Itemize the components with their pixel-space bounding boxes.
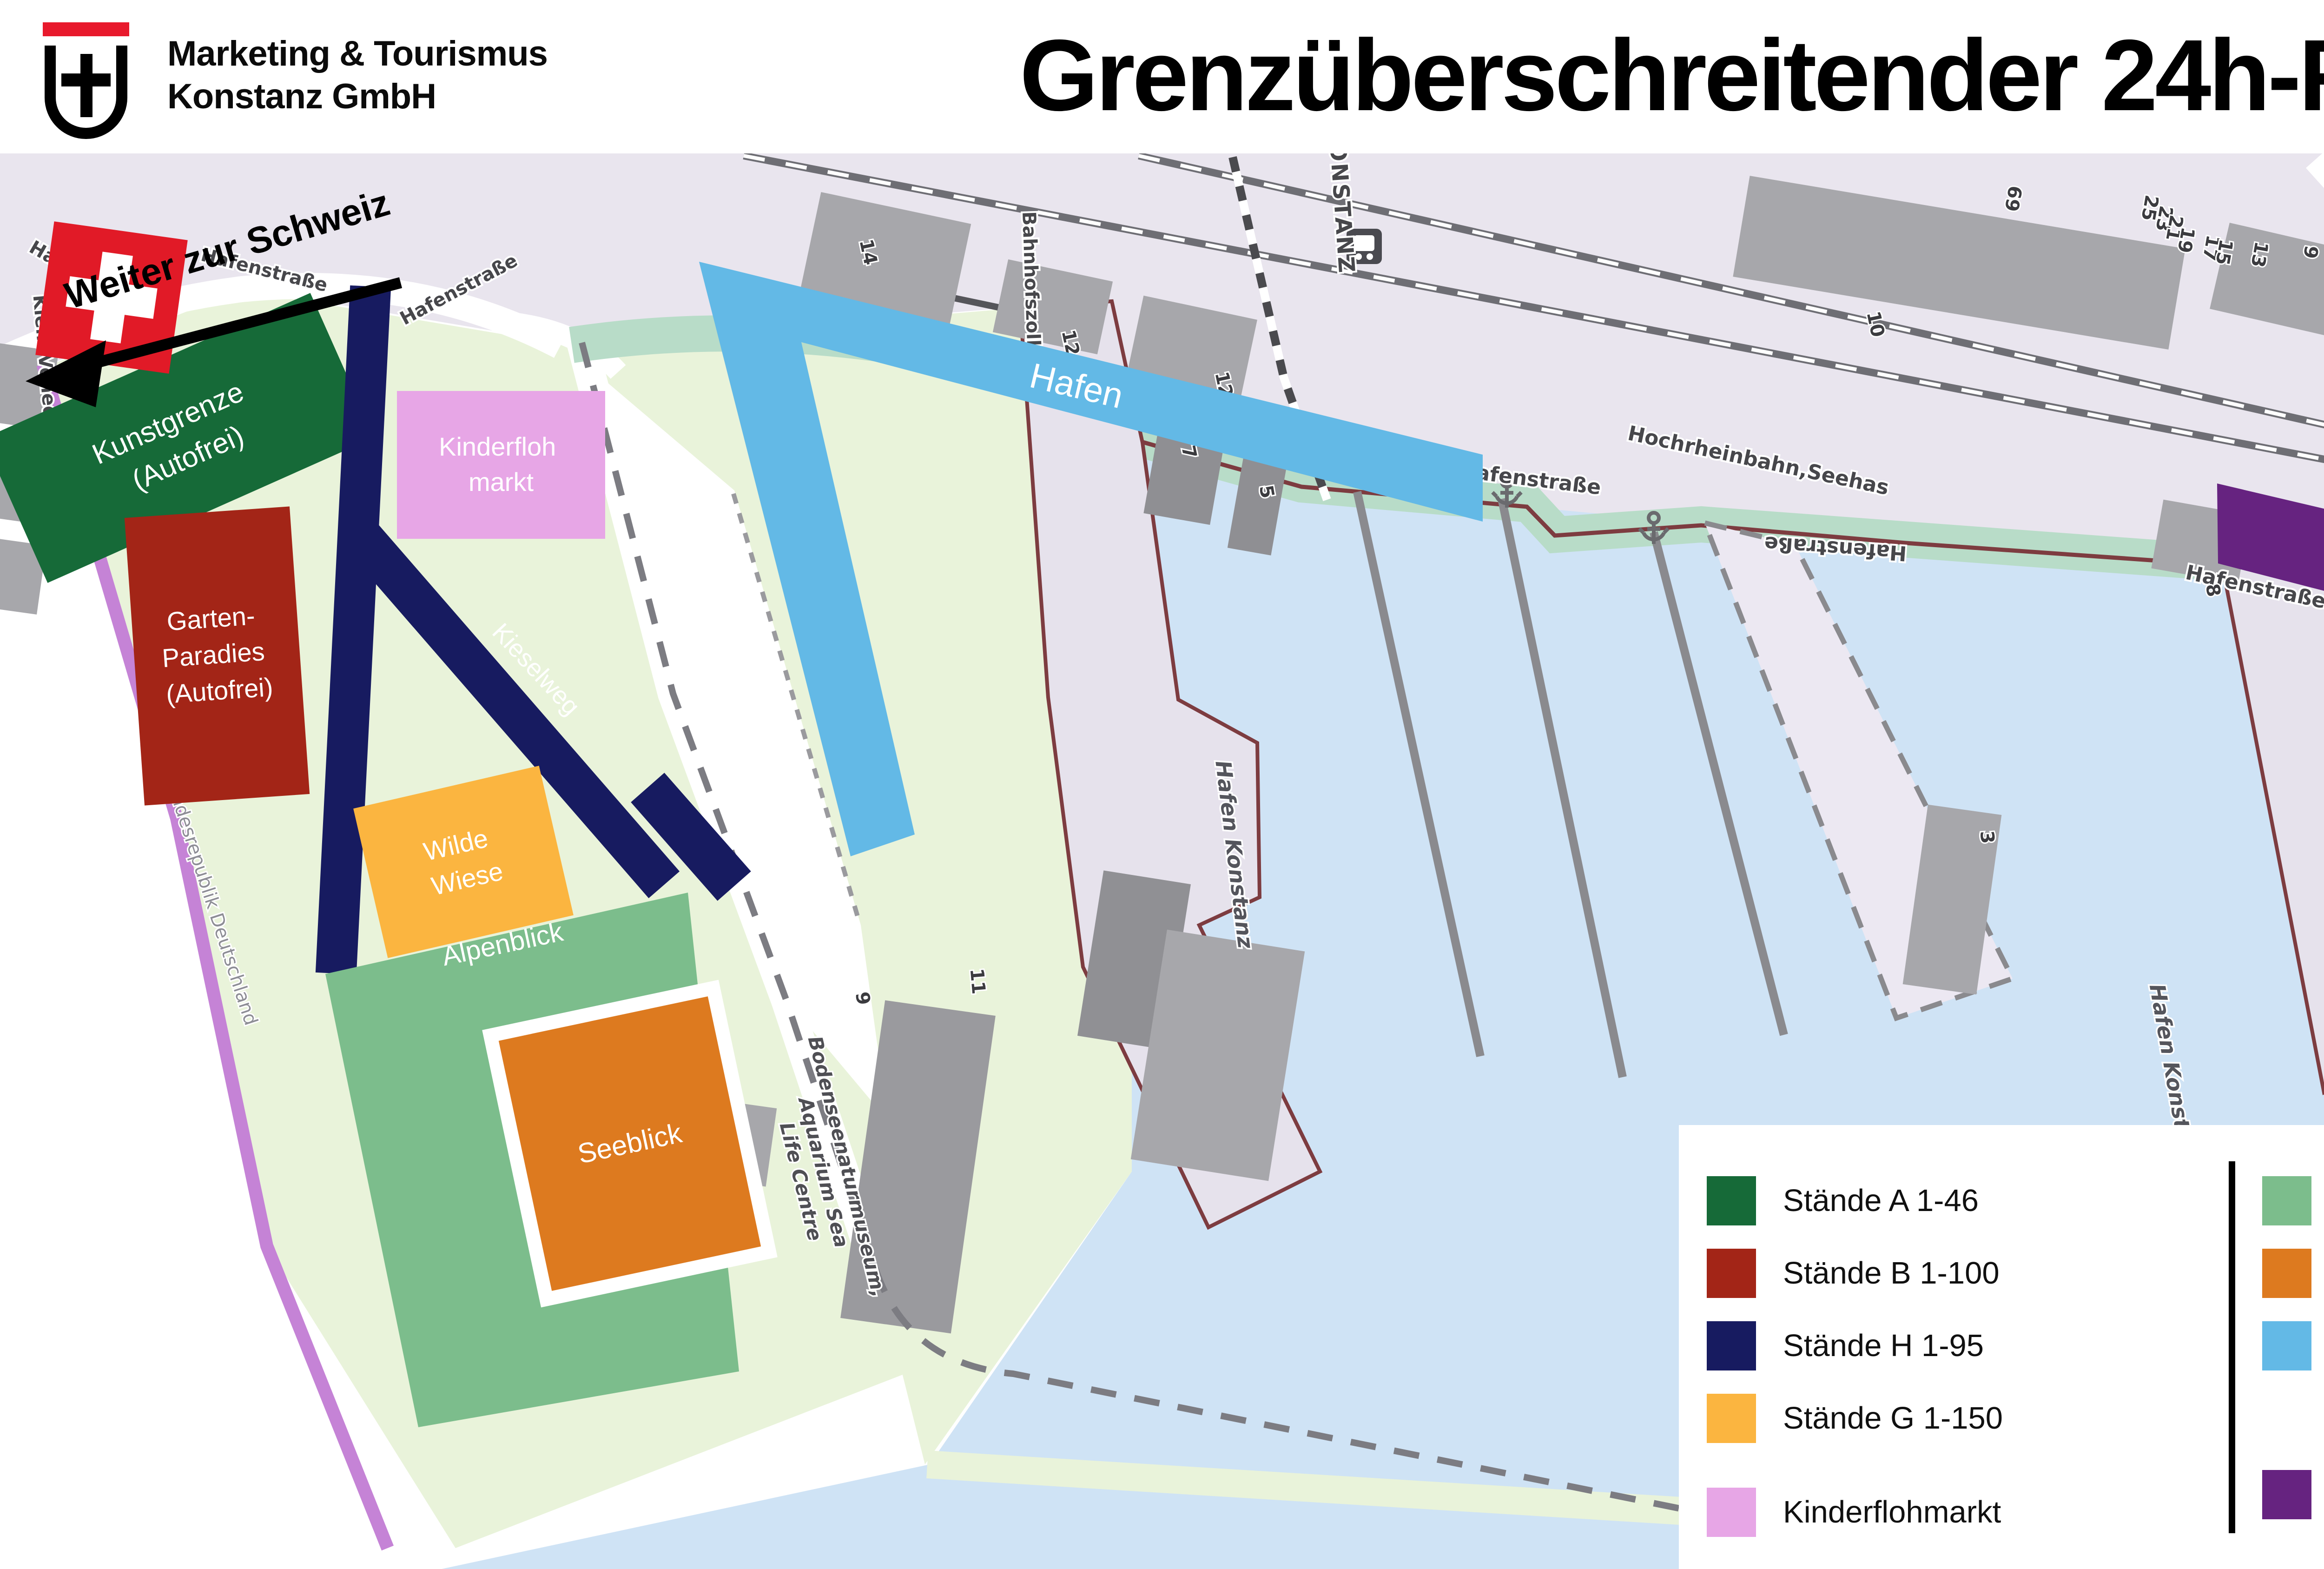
- legend-swatch: [1707, 1394, 1756, 1443]
- page-title: Grenzüberschreitender 24h-Flohmarkt: [1020, 4, 2324, 148]
- zone-garten-paradies: Garten- Paradies (Autofrei): [125, 506, 310, 805]
- logo-text: Marketing & Tourismus Konstanz GmbH: [167, 19, 548, 118]
- legend-swatch: [1707, 1249, 1756, 1298]
- legend-swatch: [2262, 1321, 2311, 1370]
- konstanz-shield-icon: [37, 19, 144, 144]
- svg-text:19: 19: [2173, 225, 2199, 255]
- logo-line1: Marketing & Tourismus: [167, 33, 548, 75]
- logo-line2: Konstanz GmbH: [167, 75, 548, 118]
- svg-text:69: 69: [2000, 184, 2026, 213]
- legend-swatch: [1707, 1321, 1756, 1370]
- svg-text:Garten- Paradies: Garten- Paradies (Autofrei): [158, 600, 275, 709]
- svg-text:11: 11: [966, 967, 990, 995]
- legend-item-staende-d: Stände D 1-98: [2262, 1176, 2324, 1225]
- zone-seeblick: Seeblick: [490, 988, 769, 1299]
- legend-swatch: [2262, 1176, 2311, 1225]
- legend-panel: Stände A 1-46 Stände B 1-100 Stände H 1-…: [1679, 1125, 2324, 1569]
- legend-swatch: [2262, 1470, 2311, 1519]
- legend-column-left: Stände A 1-46 Stände B 1-100 Stände H 1-…: [1707, 1125, 2209, 1560]
- legend-swatch: [1707, 1176, 1756, 1225]
- legend-swatch: [2262, 1249, 2311, 1298]
- legend-item-kunstmarkt: Kunst- & Kreativhandwerkermarkt + Stände…: [2262, 1321, 2324, 1447]
- legend-item-staende-g: Stände G 1-150: [1707, 1394, 2209, 1443]
- legend-divider: [2229, 1161, 2235, 1533]
- legend-item-staende-j: Stände J 1-55: [2262, 1470, 2324, 1519]
- legend-item-staende-a: Stände A 1-46: [1707, 1176, 2209, 1225]
- legend-item-staende-h: Stände H 1-95: [1707, 1321, 2209, 1370]
- header: Marketing & Tourismus Konstanz GmbH Gren…: [0, 0, 2324, 153]
- legend-column-right: Stände D 1-98 Stände E 1-127 Kunst- & Kr…: [2262, 1125, 2324, 1543]
- legend-item-staende-b: Stände B 1-100: [1707, 1249, 2209, 1298]
- legend-item-staende-e: Stände E 1-127: [2262, 1249, 2324, 1298]
- zone-kinderflohmarkt: Kinderfloh markt: [397, 391, 605, 539]
- legend-swatch: [1707, 1488, 1756, 1537]
- flea-market-map-poster: Marketing & Tourismus Konstanz GmbH Gren…: [0, 0, 2324, 1569]
- svg-text:3: 3: [1976, 830, 1998, 845]
- svg-text:15: 15: [2211, 238, 2237, 267]
- svg-text:13: 13: [2246, 240, 2272, 269]
- logo: Marketing & Tourismus Konstanz GmbH: [37, 19, 548, 144]
- legend-item-kinderflohmarkt: Kinderflohmarkt: [1707, 1488, 2209, 1537]
